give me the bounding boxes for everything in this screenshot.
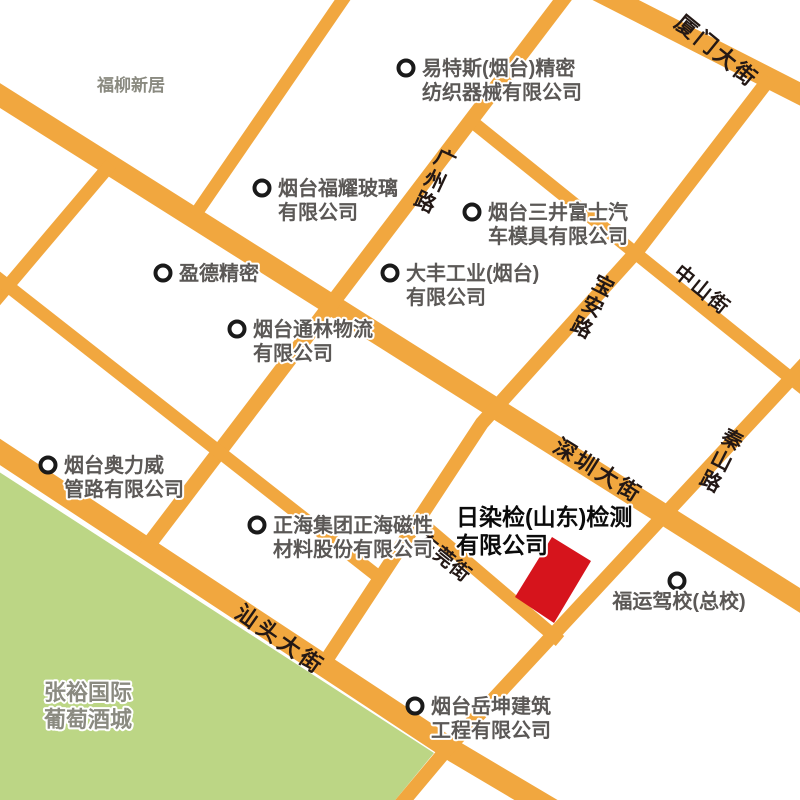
poi-marker-tonglin[interactable] [230, 322, 245, 337]
poi-label-yingde-line1: 盈德精密 [178, 261, 259, 285]
highlight-label-line1: 日染检(山东)检测 [456, 504, 632, 530]
poi-label-aoliwei-line2: 管路有限公司 [64, 477, 184, 501]
highlight-label-line2: 有限公司 [456, 532, 548, 558]
poi-label-tonglin-line1: 烟台通林物流 [253, 317, 373, 341]
area-label-zhangyu-line1: 张裕国际 [44, 680, 132, 705]
poi-label-fuyao-line1: 烟台福耀玻璃 [278, 176, 398, 200]
poi-label-sanjing-line1: 烟台三井富士汽 [488, 200, 628, 224]
area-label-fuliuxinju: 福柳新居 [96, 75, 165, 95]
poi-marker-yingde[interactable] [156, 266, 171, 281]
poi-marker-aoliwei[interactable] [41, 458, 56, 473]
poi-label-yitesi-line2: 纺织器械有限公司 [422, 80, 582, 104]
poi-marker-zhenghai[interactable] [250, 518, 265, 533]
map-canvas: 厦门大街 深圳大街 汕头大街 中山街 东莞街 广州路 宝安路 秦山路 福柳新居 … [0, 0, 800, 800]
area-label-zhangyu-line2: 葡萄酒城 [43, 707, 132, 732]
map-viewport: 厦门大街 深圳大街 汕头大街 中山街 东莞街 广州路 宝安路 秦山路 福柳新居 … [0, 0, 800, 800]
poi-marker-dafeng[interactable] [383, 266, 398, 281]
poi-marker-sanjing[interactable] [465, 205, 480, 220]
poi-label-tonglin-line2: 有限公司 [253, 341, 333, 365]
poi-label-dafeng-line1: 大丰工业(烟台) [406, 261, 539, 285]
poi-label-zhenghai-line2: 材料股份有限公司 [273, 537, 433, 561]
poi-label-dafeng-line2: 有限公司 [406, 285, 486, 309]
poi-label-sanjing-line2: 车模具有限公司 [488, 224, 628, 248]
poi-marker-yitesi[interactable] [399, 61, 414, 76]
poi-label-aoliwei-line1: 烟台奥力威 [64, 453, 164, 477]
poi-marker-yuekun[interactable] [408, 699, 423, 714]
poi-label-fuyun-line1: 福运驾校(总校) [611, 589, 745, 613]
poi-label-yuekun-line1: 烟台岳坤建筑 [431, 694, 551, 718]
poi-marker-fuyun[interactable] [670, 574, 685, 589]
poi-label-yuekun-line2: 工程有限公司 [431, 718, 551, 742]
poi-label-yitesi-line1: 易特斯(烟台)精密 [422, 56, 575, 80]
poi-label-zhenghai-line1: 正海集团正海磁性 [273, 513, 433, 537]
poi-marker-fuyao[interactable] [255, 181, 270, 196]
poi-label-fuyao-line2: 有限公司 [278, 200, 358, 224]
